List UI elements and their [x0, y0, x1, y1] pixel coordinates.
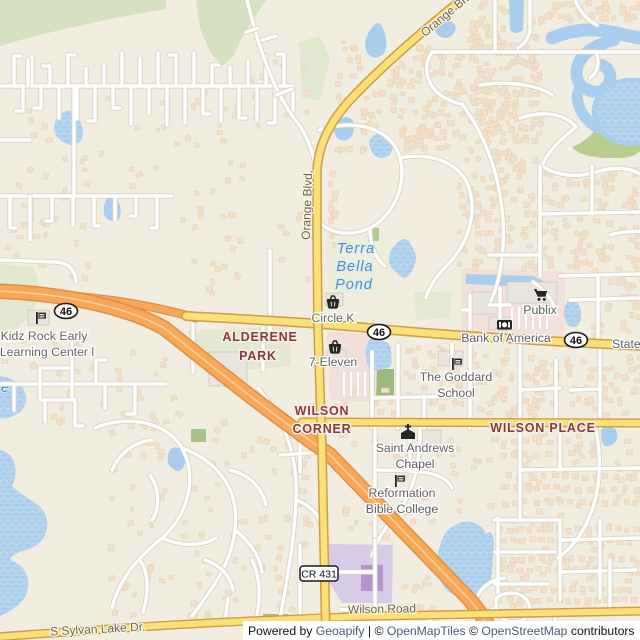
svg-text:CORNER: CORNER: [293, 422, 352, 436]
svg-text:WILSON: WILSON: [295, 404, 350, 418]
svg-text:Circle K: Circle K: [311, 311, 355, 325]
svg-text:State Road: State Road: [612, 337, 640, 351]
svg-text:WILSON PLACE: WILSON PLACE: [490, 421, 595, 435]
svg-text:CR 431: CR 431: [301, 569, 337, 581]
svg-text:Pond: Pond: [335, 277, 373, 293]
svg-text:The Goddard: The Goddard: [420, 370, 493, 384]
svg-text:46: 46: [570, 335, 582, 347]
svg-text:Orange Blvd,: Orange Blvd,: [299, 170, 315, 240]
svg-text:Chapel: Chapel: [396, 457, 435, 471]
svg-text:Reformation: Reformation: [369, 486, 436, 500]
svg-text:46: 46: [60, 306, 72, 318]
svg-text:Publix: Publix: [523, 303, 557, 317]
svg-text:46: 46: [373, 327, 385, 339]
svg-text:School: School: [437, 386, 475, 400]
svg-text:ALDERENE: ALDERENE: [222, 330, 297, 344]
svg-text:Learning Center l: Learning Center l: [0, 345, 94, 359]
svg-text:Saint Andrews: Saint Andrews: [376, 441, 455, 455]
svg-text:Wilson Road: Wilson Road: [348, 601, 416, 616]
svg-text:7-Eleven: 7-Eleven: [309, 355, 358, 369]
svg-text:Kidz Rock Early: Kidz Rock Early: [1, 329, 89, 343]
svg-text:Terra: Terra: [337, 241, 375, 257]
svg-text:Bella: Bella: [336, 259, 373, 275]
svg-text:Powered by Geoapify | © OpenMa: Powered by Geoapify | © OpenMapTiles © O…: [248, 624, 635, 638]
svg-text:Bank of America: Bank of America: [461, 331, 551, 345]
svg-text:PARK: PARK: [239, 349, 277, 363]
svg-text:Bible College: Bible College: [366, 502, 439, 516]
